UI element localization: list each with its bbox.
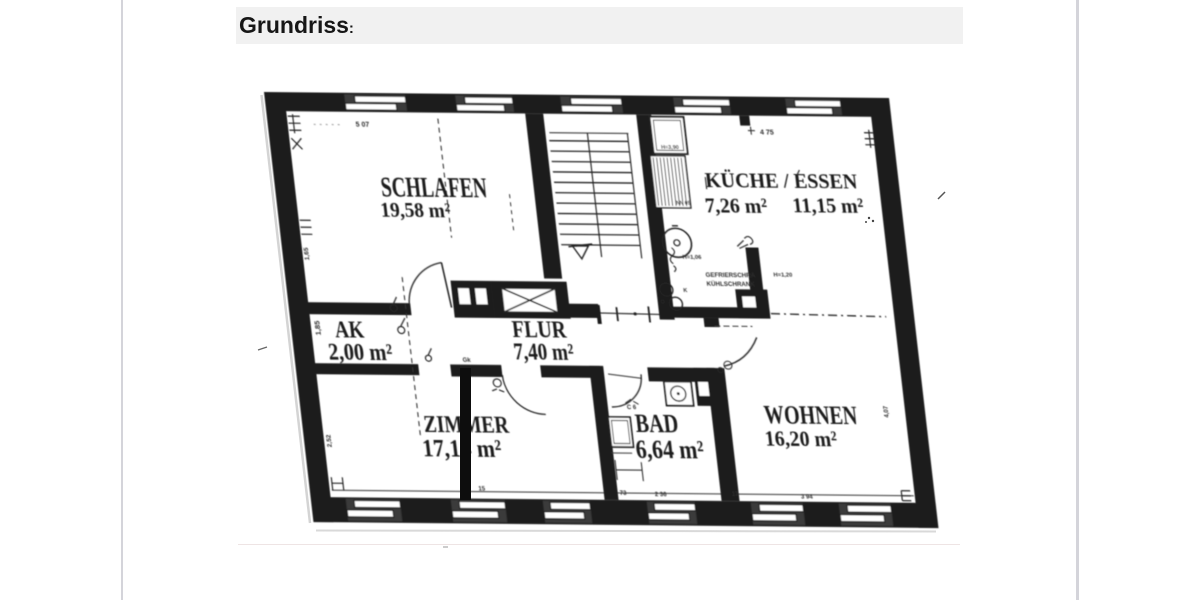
svg-text:7,26 m²: 7,26 m²	[704, 193, 769, 218]
svg-text:6,64 m²: 6,64 m²	[634, 435, 705, 465]
svg-text:NN 05: NN 05	[676, 201, 691, 207]
svg-text:15: 15	[478, 487, 486, 493]
svg-text:19,58 m²: 19,58 m²	[379, 200, 452, 223]
svg-text:C 6: C 6	[627, 405, 638, 411]
svg-text:K: K	[683, 288, 688, 294]
svg-text:4,07: 4,07	[883, 405, 890, 417]
svg-text:2 36: 2 36	[655, 492, 668, 498]
svg-text:11,15 m²: 11,15 m²	[791, 193, 865, 218]
svg-text:H=1,06: H=1,06	[682, 255, 702, 261]
svg-text:KÜCHE / ESSEN: KÜCHE / ESSEN	[704, 168, 859, 193]
svg-text:KÜHLSCHRANK: KÜHLSCHRANK	[706, 281, 756, 288]
svg-text:5 07: 5 07	[355, 122, 370, 129]
svg-text:7,40 m²: 7,40 m²	[512, 340, 575, 366]
svg-text:3 94: 3 94	[801, 495, 814, 501]
svg-text:73: 73	[620, 491, 628, 497]
svg-text:1,65: 1,65	[303, 247, 311, 260]
svg-text:4 75: 4 75	[760, 130, 775, 137]
svg-text:Gk: Gk	[462, 358, 471, 364]
svg-text:1,85: 1,85	[312, 321, 323, 336]
svg-text:H=1,20: H=1,20	[773, 273, 792, 279]
svg-text:H=3,90: H=3,90	[661, 145, 680, 151]
svg-text:2,52: 2,52	[325, 434, 333, 447]
svg-text:GEFRIERSCHRÄ: GEFRIERSCHRÄ	[705, 272, 756, 279]
svg-text:16,20 m²: 16,20 m²	[763, 425, 838, 451]
svg-text:2,00 m²: 2,00 m²	[327, 340, 394, 367]
